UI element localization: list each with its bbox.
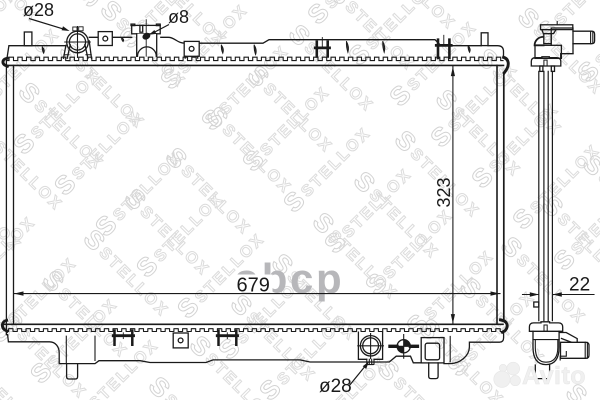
svg-text:S: S <box>489 0 522 6</box>
svg-text:22: 22 <box>569 275 590 296</box>
svg-text:STELLOX: STELLOX <box>0 179 24 255</box>
svg-text:ø28: ø28 <box>23 0 54 20</box>
svg-text:ø8: ø8 <box>168 7 189 27</box>
svg-text:STELLOX: STELLOX <box>530 22 600 98</box>
svg-text:STELLOX: STELLOX <box>161 391 237 400</box>
svg-text:323: 323 <box>434 177 454 207</box>
svg-text:STELLOX: STELLOX <box>593 0 600 70</box>
svg-text:STELLOX: STELLOX <box>404 18 480 94</box>
svg-text:STELLOX: STELLOX <box>390 374 466 400</box>
svg-text:Avito: Avito <box>522 362 586 390</box>
svg-text:ø28: ø28 <box>319 376 352 397</box>
svg-text:679: 679 <box>237 275 270 297</box>
